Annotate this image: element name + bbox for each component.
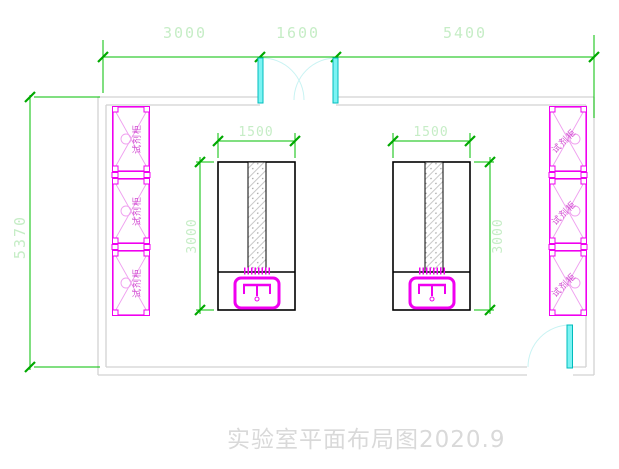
left-dimension: 5370 (11, 92, 100, 372)
left-lab-bench (218, 162, 295, 310)
top-door-right-leaf (333, 58, 338, 103)
dim-right-bench-width: 1500 (413, 125, 448, 140)
dim-top-right: 5400 (443, 24, 487, 42)
left-cabinet-column: 试剂柜 试剂柜 试剂柜 (112, 107, 150, 316)
top-dimension-chain: 3000 1600 5400 (98, 24, 599, 118)
right-cabinet-column: 试剂柜 试剂柜 试剂柜 (549, 107, 587, 316)
bottom-right-door (528, 325, 573, 368)
left-cabinet-2-label: 试剂柜 (131, 196, 143, 226)
top-double-door (258, 58, 338, 103)
room-walls (98, 97, 594, 375)
left-bench-service-strip (248, 162, 266, 272)
left-cabinet-3-label: 试剂柜 (131, 268, 143, 298)
top-door-left-leaf (258, 58, 263, 103)
left-cabinet-1-label: 试剂柜 (131, 124, 143, 154)
drawing-title: 实验室平面布局图2020.9 (227, 420, 505, 454)
floor-plan-drawing: 3000 1600 5400 5370 1500 3000 (0, 0, 619, 469)
dim-top-middle: 1600 (276, 24, 320, 42)
dim-left-bench-depth: 3000 (185, 218, 200, 253)
right-bench-service-strip (425, 162, 443, 272)
bottom-door-leaf (567, 325, 573, 368)
cad-floorplan-canvas: 3000 1600 5400 5370 1500 3000 (0, 0, 619, 469)
dim-left-wall: 5370 (11, 215, 29, 259)
dim-top-left: 3000 (163, 24, 207, 42)
dim-left-bench-width: 1500 (238, 125, 273, 140)
dim-right-bench-depth: 3000 (491, 218, 506, 253)
right-lab-bench (393, 162, 470, 310)
